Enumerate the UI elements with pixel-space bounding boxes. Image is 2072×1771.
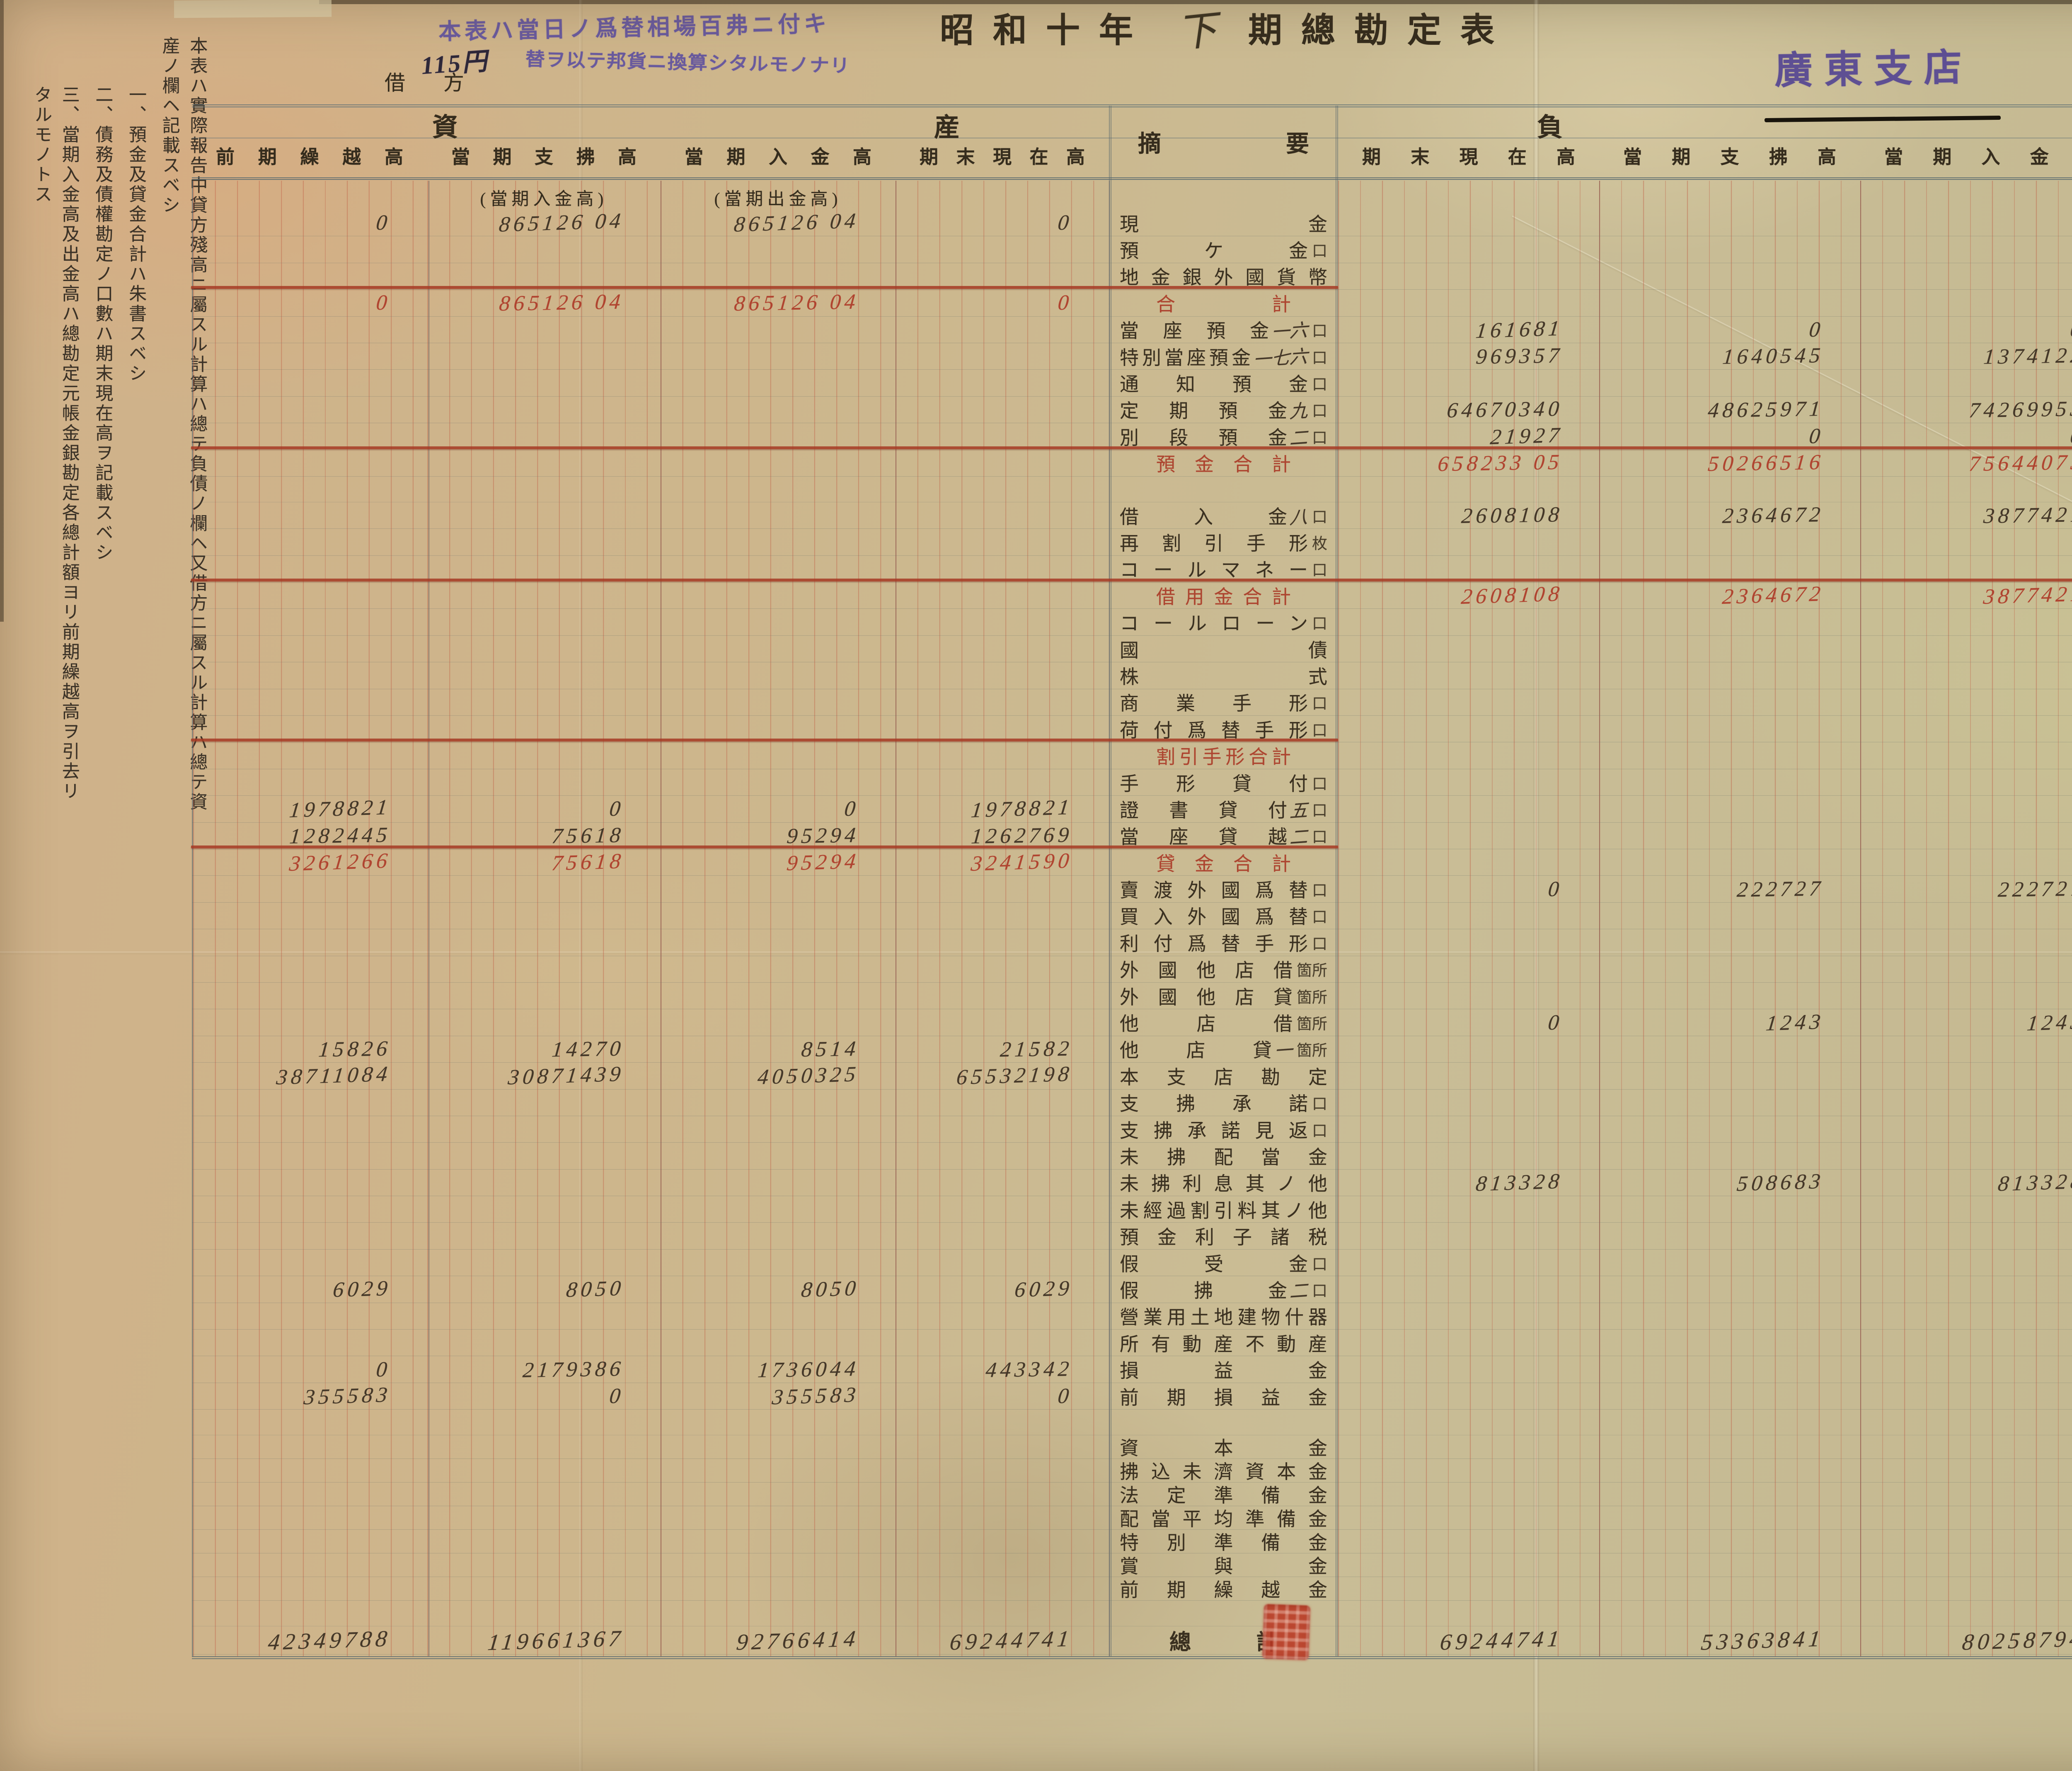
amount-cell: 1243: [1860, 1009, 2072, 1035]
account-label: 手形貸付: [1120, 769, 1308, 796]
amount-cell: [896, 876, 1109, 902]
column-subheader: (當期出金高): [661, 185, 896, 208]
amount-cell: [1599, 769, 1860, 795]
table-row: 3871108430871439405032565532198本支店勘定: [192, 1063, 2072, 1089]
unit-label: 口: [1312, 878, 1327, 900]
amount-cell: [1338, 1435, 1599, 1458]
amount-cell: [1599, 1483, 1860, 1506]
handwritten-amount: 865126 04: [733, 208, 861, 237]
amount-cell: [192, 556, 427, 582]
amount-cell: [661, 636, 896, 662]
handwritten-amount: 1978821: [970, 795, 1074, 823]
amount-cell: [1860, 290, 2072, 316]
account-cell: 當座貸越二口: [1109, 823, 1338, 849]
amount-cell: 0: [427, 1383, 661, 1409]
amount-cell: [427, 1223, 661, 1249]
amount-cell: 21582: [896, 1036, 1109, 1062]
amount-cell: [427, 317, 661, 343]
account-cell: 別段預金二口: [1109, 423, 1338, 449]
amount-cell: [661, 317, 896, 343]
amount-cell: [427, 1601, 661, 1626]
handwritten-amount: 92766414: [735, 1626, 861, 1655]
table-row: 株式: [192, 662, 2072, 689]
account-cell: 地金銀外國貨幣: [1109, 263, 1338, 289]
amount-cell: [427, 529, 661, 555]
amount-cell: [427, 263, 661, 289]
table-row: 手形貸付口: [192, 769, 2072, 796]
amount-cell: [427, 1410, 661, 1435]
handwritten-amount: 4050325: [756, 1062, 860, 1090]
account-cell: 特別準備金: [1109, 1530, 1338, 1553]
table-row: 外國他店借箇所: [192, 956, 2072, 983]
unit-label: 箇所: [1297, 1011, 1327, 1034]
amount-cell: [1599, 1036, 1860, 1062]
amount-cell: [427, 769, 661, 795]
unit-label: 口: [1312, 691, 1327, 713]
unit-label: 口: [1312, 771, 1327, 794]
amount-cell: [192, 876, 427, 902]
margin-note: 二、債務及債權勘定ノ口數ハ期末現在高ヲ記載スベシ: [88, 85, 116, 816]
amount-cell: [427, 1553, 661, 1577]
page-title-period-handwritten: 下: [1174, 0, 1220, 59]
amount-cell: 2364672: [1599, 582, 1860, 608]
amount-cell: 0: [1338, 876, 1599, 902]
handwritten-amount: 3877421: [1982, 502, 2072, 528]
amount-cell: [1860, 1383, 2072, 1409]
amount-cell: [1599, 1303, 1860, 1329]
handwritten-amount: 1282445: [288, 823, 392, 849]
amount-cell: [1599, 529, 1860, 555]
amount-cell: [1860, 716, 2072, 742]
amount-cell: [192, 1223, 427, 1249]
amount-cell: [1599, 689, 1860, 715]
amount-cell: [1338, 1530, 1599, 1553]
handwritten-amount: 65532198: [956, 1062, 1074, 1090]
account-cell: 預ケ金口: [1109, 236, 1338, 262]
table-row: 外國他店貸箇所: [192, 983, 2072, 1009]
amount-cell: [896, 903, 1109, 929]
amount-cell: 0: [896, 1383, 1109, 1409]
amount-cell: [1860, 1223, 2072, 1249]
amount-cell: 3877421: [1860, 582, 2072, 608]
table-row: コールローン口: [192, 609, 2072, 635]
amount-cell: [192, 317, 427, 343]
amount-cell: 74269953: [1860, 397, 2072, 423]
handwritten-amount: 0: [1057, 291, 1073, 315]
account-cell: 荷付爲替手形口: [1109, 716, 1338, 742]
amount-cell: [896, 502, 1109, 528]
amount-cell: 30871439: [427, 1063, 661, 1089]
amount-cell: [1599, 1063, 1860, 1089]
account-count-handwritten: 九: [1289, 396, 1308, 424]
handwritten-amount: 64670340: [1446, 397, 1564, 423]
column-header: 期末現在高: [1338, 142, 1599, 175]
amount-cell: [661, 1303, 896, 1329]
amount-cell: 2608108: [1338, 582, 1599, 608]
subtotal-label: 貸金合計: [1120, 849, 1327, 876]
handwritten-amount: 508683: [1736, 1169, 1825, 1197]
amount-cell: [1860, 210, 2072, 236]
table-row: 借入金八口2608108236467238774211395359: [192, 502, 2072, 529]
table-row: 423497881196613679276641469244741總計69244…: [192, 1626, 2072, 1655]
table-row: 通知預金口: [192, 370, 2072, 396]
amount-cell: [192, 662, 427, 688]
amount-cell: [192, 636, 427, 662]
amount-cell: 1978821: [896, 796, 1109, 822]
account-cell: コールマネー口: [1109, 556, 1338, 582]
amount-cell: [192, 477, 427, 502]
amount-cell: [427, 343, 661, 369]
account-cell: 國債: [1109, 636, 1338, 662]
amount-cell: [1338, 1036, 1599, 1062]
amount-cell: [192, 1577, 427, 1600]
spacer-row: [192, 477, 2072, 502]
amount-cell: [1599, 1506, 1860, 1529]
amount-cell: 3261266: [192, 849, 427, 875]
column-header: 當期支拂高: [1599, 142, 1860, 175]
table-row: 未經過割引料其ノ他: [192, 1196, 2072, 1223]
amount-cell: [1338, 929, 1599, 955]
amount-cell: [1599, 1530, 1860, 1553]
exchange-rate-note-line1: 本表ハ當日ノ爲替相場百弗ニ付キ: [438, 5, 830, 46]
amount-cell: [1599, 1356, 1860, 1382]
account-cell: 前期繰越金: [1109, 1577, 1338, 1600]
handwritten-amount: 0: [2069, 317, 2072, 342]
handwritten-amount: 865126 04: [498, 208, 626, 237]
amount-cell: [427, 397, 661, 423]
handwritten-amount: 658233 05: [1437, 450, 1564, 476]
amount-cell: 0: [896, 290, 1109, 316]
account-count-handwritten: 二: [1289, 422, 1308, 450]
account-cell: 現金: [1109, 210, 1338, 236]
handwritten-amount: 15826: [317, 1037, 392, 1062]
amount-cell: [1599, 662, 1860, 688]
amount-cell: [1599, 983, 1860, 1009]
amount-cell: [427, 662, 661, 688]
amount-cell: 813328: [1338, 1170, 1599, 1196]
account-count-handwritten: 一: [1274, 1035, 1293, 1063]
amount-cell: [1338, 1196, 1599, 1222]
amount-cell: [427, 1303, 661, 1329]
account-label: 預金利子諸税: [1120, 1222, 1327, 1250]
amount-cell: [1860, 1063, 2072, 1089]
amount-cell: [896, 1090, 1109, 1116]
amount-cell: 69244741: [896, 1626, 1109, 1654]
amount-cell: [1860, 636, 2072, 662]
amount-cell: 1736044: [661, 1356, 896, 1382]
account-cell: 買入外國爲替口: [1109, 903, 1338, 929]
amount-cell: [661, 397, 896, 423]
amount-cell: [661, 689, 896, 715]
account-label: 現金: [1120, 209, 1327, 237]
amount-cell: [896, 397, 1109, 423]
amount-cell: 4050325: [661, 1063, 896, 1089]
amount-cell: 865126 04: [427, 210, 661, 236]
amount-cell: [661, 450, 896, 476]
amount-cell: 969357: [1338, 343, 1599, 369]
red-seal-stamp: [1262, 1604, 1311, 1660]
handwritten-amount: 222727: [1736, 876, 1825, 902]
amount-cell: [1338, 236, 1599, 262]
amount-cell: [896, 1250, 1109, 1276]
unit-label: 口: [1312, 504, 1327, 527]
handwritten-amount: 0: [1808, 424, 1825, 449]
handwritten-amount: 80258794: [1961, 1626, 2072, 1655]
amount-cell: [896, 1116, 1109, 1142]
amount-cell: 8050: [661, 1276, 896, 1302]
amount-cell: [1338, 1577, 1599, 1600]
account-label: 再割引手形: [1120, 528, 1308, 556]
account-label: 別段預金: [1120, 423, 1287, 450]
amount-cell: [427, 582, 661, 608]
subtotal-label: 割引手形合計: [1120, 742, 1327, 769]
table-row: 前期繰越金: [192, 1577, 2072, 1601]
column-header: 當期入金高: [1860, 142, 2072, 175]
handwritten-amount: 48625971: [1707, 397, 1825, 423]
account-cell: 證書貸付五口: [1109, 796, 1338, 822]
amount-cell: [661, 370, 896, 396]
amount-cell: [1599, 210, 1860, 236]
unit-label: 口: [1312, 318, 1327, 341]
amount-cell: [1860, 983, 2072, 1009]
amount-cell: [1599, 236, 1860, 262]
amount-cell: [661, 1090, 896, 1116]
account-cell: 損益金: [1109, 1356, 1338, 1382]
amount-cell: [896, 343, 1109, 369]
amount-cell: [1338, 210, 1599, 236]
amount-cell: [1338, 1063, 1599, 1089]
amount-cell: [427, 1170, 661, 1196]
amount-cell: [896, 370, 1109, 396]
amount-cell: [192, 263, 427, 289]
account-label: 他店貸: [1120, 1035, 1272, 1063]
amount-cell: [661, 1506, 896, 1529]
amount-cell: 48625971: [1599, 397, 1860, 423]
table-row: 法定準備金: [192, 1483, 2072, 1506]
account-label: 預ケ金: [1120, 236, 1308, 263]
amount-cell: [661, 1196, 896, 1222]
amount-cell: 865126 04: [661, 290, 896, 316]
table-row: 0865126 04865126 040現金: [192, 210, 2072, 236]
handwritten-amount: 355583: [771, 1383, 860, 1410]
amount-cell: [1860, 236, 2072, 262]
amount-cell: [1860, 1090, 2072, 1116]
handwritten-amount: 69244741: [1439, 1626, 1564, 1655]
torn-paper-strip: [174, 0, 332, 18]
amount-cell: [427, 876, 661, 902]
amount-cell: [661, 1601, 896, 1626]
amount-cell: 2179386: [427, 1356, 661, 1382]
account-cell: コールローン口: [1109, 609, 1338, 635]
amount-cell: [1599, 1090, 1860, 1116]
amount-cell: [1860, 370, 2072, 396]
amount-cell: [661, 983, 896, 1009]
table-row: 0865126 04865126 040合計: [192, 290, 2072, 316]
handwritten-amount: 222727: [1997, 876, 2072, 902]
amount-cell: [896, 689, 1109, 715]
unit-label: 口: [1312, 345, 1327, 368]
amount-cell: [427, 1459, 661, 1482]
amount-cell: [192, 529, 427, 555]
account-cell: 未經過割引料其ノ他: [1109, 1196, 1338, 1222]
amount-cell: [1338, 1410, 1599, 1435]
amount-cell: [1599, 556, 1860, 582]
amount-cell: [896, 1223, 1109, 1249]
amount-cell: [661, 956, 896, 982]
table-row: 商業手形口: [192, 689, 2072, 716]
amount-cell: 0: [661, 796, 896, 822]
handwritten-amount: 0: [375, 1357, 392, 1382]
handwritten-amount: 443342: [985, 1357, 1074, 1382]
column-header: 期末現在高: [896, 142, 1109, 175]
handwritten-amount: 1262769: [970, 823, 1074, 849]
account-label: 商業手形: [1120, 688, 1308, 716]
amount-cell: [661, 662, 896, 688]
amount-cell: [427, 742, 661, 768]
handwritten-amount: 1978821: [288, 795, 392, 823]
amount-cell: [1599, 1223, 1860, 1249]
amount-cell: [192, 956, 427, 982]
table-row: 別段預金二口219270021927: [192, 423, 2072, 450]
unit-label: 口: [1312, 1118, 1327, 1141]
amount-cell: 0: [1338, 1009, 1599, 1035]
table-row: 1582614270851421582他店貸一箇所: [192, 1036, 2072, 1063]
amount-cell: [427, 903, 661, 929]
amount-cell: 355583: [192, 1383, 427, 1409]
handwritten-amount: 161681: [1474, 316, 1564, 343]
table-row: 國債: [192, 636, 2072, 662]
account-cell: 營業用土地建物什器: [1109, 1303, 1338, 1329]
handwritten-amount: 355583: [303, 1383, 392, 1410]
amount-cell: [427, 956, 661, 982]
unit-label: 口: [1312, 425, 1327, 448]
handwritten-amount: 0: [1547, 877, 1564, 901]
amount-cell: [1599, 1459, 1860, 1482]
amount-cell: [661, 1143, 896, 1169]
account-cell: 假拂金二口: [1109, 1276, 1338, 1302]
amount-cell: [1338, 477, 1599, 502]
amount-cell: [427, 1577, 661, 1600]
amount-cell: 95294: [661, 849, 896, 875]
amount-cell: [1860, 1250, 2072, 1276]
amount-cell: [1338, 636, 1599, 662]
table-row: 拂込未濟資本金: [192, 1459, 2072, 1483]
amount-cell: [661, 1530, 896, 1553]
amount-cell: [661, 1483, 896, 1506]
amount-cell: [427, 1330, 661, 1356]
amount-cell: [427, 370, 661, 396]
amount-cell: 75618: [427, 849, 661, 875]
account-cell: 通知預金口: [1109, 370, 1338, 396]
table-row: 6029805080506029假拂金二口: [192, 1276, 2072, 1303]
handwritten-amount: 1374122: [1982, 343, 2072, 369]
spacer-row: [192, 1601, 2072, 1626]
margin-notes: 本表ハ實際報告中貸方殘高ニ屬スル計算ハ總テ負債ノ欄ヘ又借方ニ屬スル計算ハ總テ資産…: [22, 36, 211, 816]
account-label: コールマネー: [1120, 555, 1308, 582]
handwritten-amount: 0: [843, 797, 860, 821]
amount-cell: 0: [896, 210, 1109, 236]
amount-cell: [1599, 1577, 1860, 1600]
account-cell: 利付爲替手形口: [1109, 929, 1338, 955]
amount-cell: 75644075: [1860, 450, 2072, 476]
table-row: 配當平均準備金: [192, 1506, 2072, 1530]
unit-label: 口: [1312, 611, 1327, 633]
account-cell: 割引手形合計: [1109, 742, 1338, 768]
account-label: 未經過割引料其ノ他: [1120, 1196, 1327, 1223]
handwritten-amount: 865126 04: [499, 290, 625, 316]
amount-cell: [427, 1250, 661, 1276]
amount-cell: [192, 983, 427, 1009]
table-row: 支拂承諾見返口: [192, 1116, 2072, 1143]
margin-note: 一、預金及貸金合計ハ朱書スベシ: [122, 85, 150, 816]
amount-cell: [1599, 370, 1860, 396]
account-label: 他店借: [1120, 1009, 1293, 1036]
table-row: 地金銀外國貨幣: [192, 263, 2072, 290]
liabilities-section-header: 負債: [1338, 106, 2072, 138]
handwritten-amount: 2364672: [1721, 502, 1825, 528]
account-cell: 定期預金九口: [1109, 397, 1338, 423]
amount-cell: [1338, 290, 1599, 316]
handwritten-amount: 0: [1808, 317, 1825, 342]
unit-label: 口: [1312, 1252, 1327, 1274]
account-cell: 所有動産不動産: [1109, 1330, 1338, 1356]
handwritten-amount: 0: [1057, 1383, 1074, 1408]
amount-cell: [427, 1143, 661, 1169]
amount-cell: [192, 343, 427, 369]
amount-cell: [896, 1196, 1109, 1222]
amount-cell: 119661367: [427, 1626, 661, 1654]
column-subheader: (當期入金高): [427, 185, 661, 208]
amount-cell: [192, 1009, 427, 1035]
table-bottom-border: [192, 1656, 2072, 1659]
amount-cell: [192, 1435, 427, 1458]
amount-cell: [1860, 1435, 2072, 1458]
amount-cell: [896, 1483, 1109, 1506]
amount-cell: [661, 1116, 896, 1142]
unit-label: 箇所: [1297, 958, 1327, 980]
summary-header-cell: 摘要: [1109, 109, 1338, 175]
table-row: 326126675618952943241590貸金合計: [192, 849, 2072, 876]
amount-cell: 14270: [427, 1036, 661, 1062]
amount-cell: [1860, 956, 2072, 982]
amount-cell: [896, 423, 1109, 449]
amount-cell: 865126 04: [661, 210, 896, 236]
amount-cell: 0: [1599, 317, 1860, 343]
amount-cell: [192, 397, 427, 423]
account-cell: 賞與金: [1109, 1553, 1338, 1577]
table-row: 特別準備金: [192, 1530, 2072, 1553]
handwritten-amount: 14270: [551, 1037, 625, 1062]
account-label: 外國他店貸: [1120, 982, 1293, 1010]
unit-label: 口: [1312, 398, 1327, 421]
amount-cell: [661, 1330, 896, 1356]
table-row: 1978821001978821證書貸付五口: [192, 796, 2072, 822]
account-count-handwritten: 一七六: [1253, 341, 1308, 372]
table-row: 他店借箇所0124312430: [192, 1009, 2072, 1036]
amount-cell: [661, 903, 896, 929]
amount-cell: [1860, 796, 2072, 822]
amount-cell: [1599, 796, 1860, 822]
table-row: 荷付爲替手形口: [192, 716, 2072, 742]
handwritten-amount: 21582: [999, 1037, 1074, 1062]
amount-cell: [192, 1506, 427, 1529]
amount-cell: [1860, 1276, 2072, 1302]
amount-cell: [1599, 1601, 1860, 1626]
amount-cell: [1599, 1553, 1860, 1577]
amount-cell: 2364672: [1599, 502, 1860, 528]
amount-cell: [1338, 1330, 1599, 1356]
amount-cell: [1599, 742, 1860, 768]
